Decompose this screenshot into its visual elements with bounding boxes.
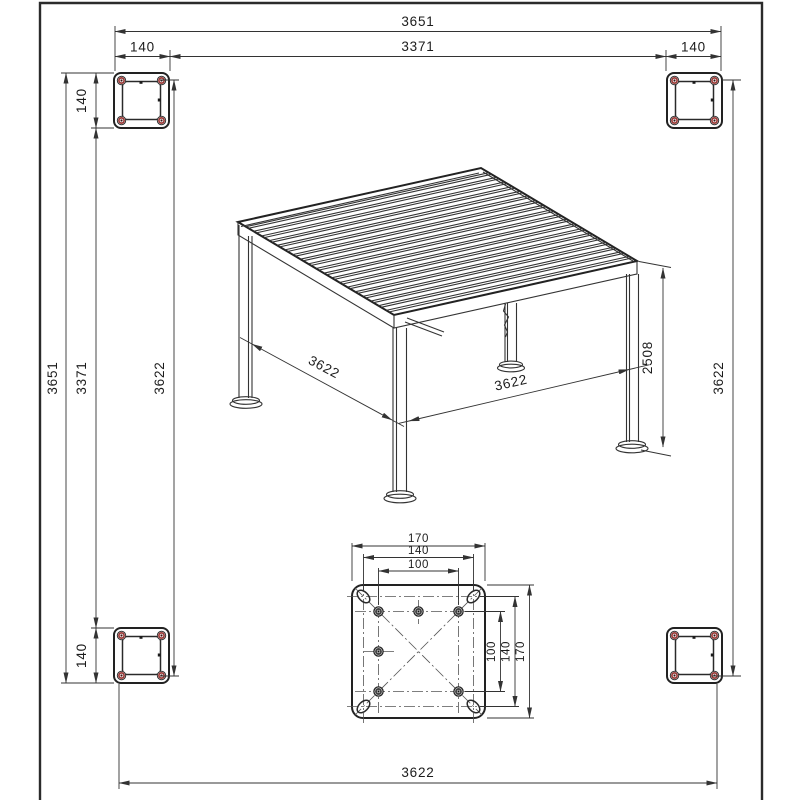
dim-right-roof: 3622 [711,361,726,394]
pergola-technical-drawing: 3651 140 3371 140 3651 3371 140 140 3622… [0,0,800,800]
top-dimensions: 3651 140 3371 140 [115,14,721,71]
dim-left-post-bottom: 140 [74,643,89,668]
post-bottom-right [667,628,722,683]
dim-left-overall: 3651 [45,361,60,394]
pergola-post-left [230,225,262,408]
dim-plate-h-mid: 140 [501,641,513,662]
dim-bottom-roof: 3622 [401,765,434,780]
dim-iso-height: 2508 [640,341,655,374]
dim-left-inner: 3371 [74,361,89,394]
pergola-post-front [384,328,416,503]
drawing-canvas: 3651 140 3371 140 3651 3371 140 140 3622… [0,0,800,800]
dim-top-left-offset: 140 [130,40,155,55]
dim-iso-width: 3622 [493,372,529,394]
dim-left-roof: 3622 [152,361,167,394]
sheet-frame [40,3,762,800]
post-top-right [667,73,722,128]
dim-left-post-top: 140 [74,88,89,113]
dim-top-right-offset: 140 [681,40,706,55]
pergola-post-rear [498,303,525,372]
base-plate-detail: 170 140 100 100 140 170 [347,533,534,723]
left-dimensions: 3651 3371 140 140 3622 [45,73,179,683]
dim-plate-w-inner: 100 [408,559,429,571]
plate-top-dimensions: 170 140 100 [352,533,485,605]
dim-plate-w-outer: 170 [408,533,429,545]
dim-plate-h-outer: 170 [515,641,527,662]
plate-right-dimensions: 100 140 170 [465,585,534,718]
post-top-left [114,73,169,128]
right-dimensions: 3622 [711,80,741,676]
dim-top-inner: 3371 [401,39,434,54]
dim-plate-h-inner: 100 [486,641,498,662]
post-bottom-left [114,628,169,683]
dim-plate-w-mid: 140 [408,545,429,557]
dim-iso-depth: 3622 [306,353,342,382]
pergola-isometric-view: 3622 3622 2508 [230,168,671,503]
bottom-dimensions: 3622 [119,684,717,789]
dim-top-overall: 3651 [401,14,434,29]
